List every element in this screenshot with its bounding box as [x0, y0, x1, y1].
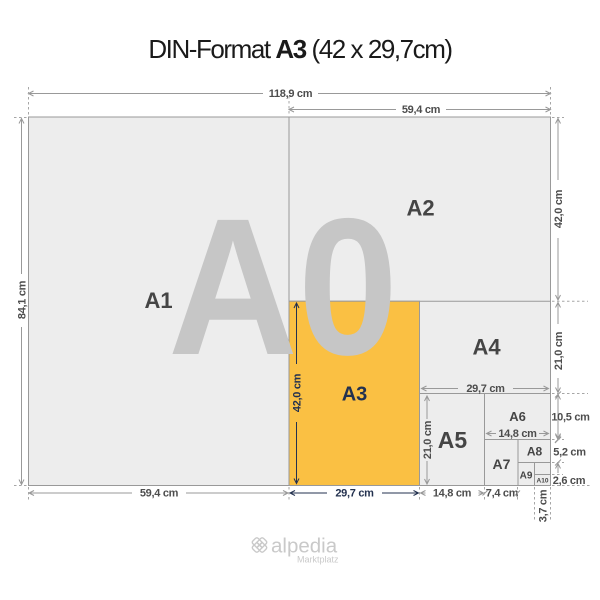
svg-text:A1: A1: [144, 288, 172, 313]
svg-text:DIN-Format A3 (42 x 29,7cm): DIN-Format A3 (42 x 29,7cm): [148, 34, 452, 64]
svg-text:59,4 cm: 59,4 cm: [140, 488, 179, 500]
svg-text:29,7 cm: 29,7 cm: [466, 383, 505, 395]
svg-text:21,0 cm: 21,0 cm: [422, 420, 434, 459]
svg-text:10,5 cm: 10,5 cm: [551, 412, 590, 424]
svg-text:A9: A9: [520, 471, 533, 482]
svg-text:42,0 cm: 42,0 cm: [553, 189, 565, 228]
svg-text:Marktplatz: Marktplatz: [297, 555, 339, 565]
svg-text:A5: A5: [438, 427, 468, 453]
svg-text:42,0 cm: 42,0 cm: [292, 373, 304, 412]
svg-text:14,8 cm: 14,8 cm: [498, 428, 537, 440]
svg-text:21,0 cm: 21,0 cm: [553, 331, 565, 370]
svg-text:5,2 cm: 5,2 cm: [553, 447, 586, 459]
svg-text:118,9 cm: 118,9 cm: [269, 88, 313, 100]
svg-text:3,7 cm: 3,7 cm: [538, 489, 550, 522]
svg-text:A4: A4: [472, 335, 501, 360]
svg-text:A0: A0: [168, 178, 398, 396]
svg-text:84,1 cm: 84,1 cm: [17, 280, 29, 319]
svg-text:59,4 cm: 59,4 cm: [402, 104, 441, 116]
svg-text:A3: A3: [342, 384, 368, 406]
svg-text:A6: A6: [509, 409, 526, 424]
svg-text:29,7 cm: 29,7 cm: [335, 488, 374, 500]
svg-text:14,8 cm: 14,8 cm: [433, 488, 472, 500]
svg-text:A8: A8: [527, 445, 543, 459]
svg-text:A7: A7: [493, 456, 511, 472]
svg-text:A2: A2: [406, 196, 434, 221]
svg-text:A10: A10: [537, 478, 549, 485]
svg-text:2,6 cm: 2,6 cm: [553, 475, 586, 487]
svg-text:7,4 cm: 7,4 cm: [486, 488, 519, 500]
